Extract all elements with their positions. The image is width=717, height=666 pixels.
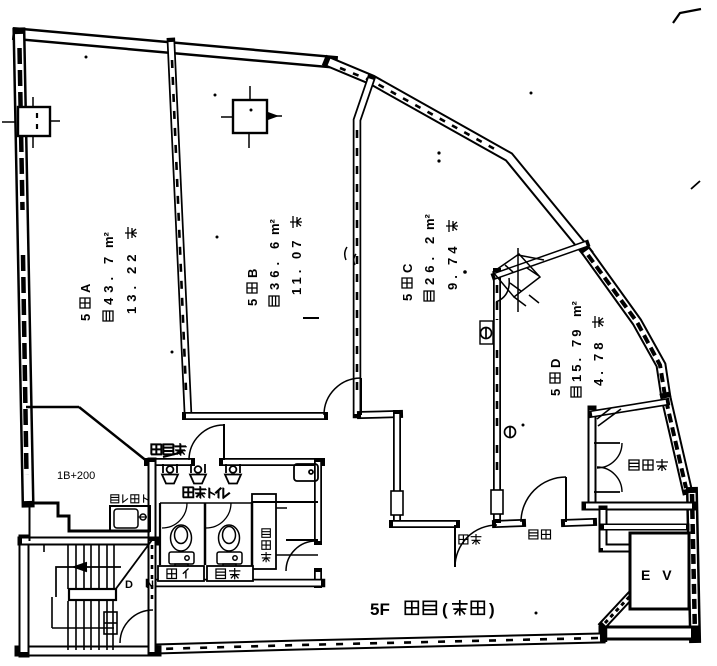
svg-text:9.: 9. <box>445 271 460 290</box>
svg-text:26.: 26. <box>422 252 437 285</box>
svg-text:5: 5 <box>400 294 415 301</box>
svg-text:74: 74 <box>445 243 460 265</box>
svg-text:36.: 36. <box>267 257 282 290</box>
svg-text:m²: m² <box>267 218 282 235</box>
svg-text:43.: 43. <box>101 272 116 305</box>
svg-text:2: 2 <box>422 237 437 244</box>
svg-text:79: 79 <box>569 327 584 347</box>
svg-text:78: 78 <box>591 339 606 361</box>
svg-text:A: A <box>78 283 93 293</box>
svg-text:B: B <box>245 269 260 278</box>
svg-text:6: 6 <box>267 242 282 249</box>
svg-text:5: 5 <box>78 314 93 321</box>
svg-text:m²: m² <box>422 213 437 230</box>
svg-text:5F: 5F <box>370 600 390 619</box>
svg-text:22: 22 <box>124 250 139 274</box>
svg-text:5: 5 <box>548 389 563 396</box>
svg-text:15.: 15. <box>569 355 584 382</box>
svg-text:D N: D N <box>125 579 159 591</box>
svg-text:(: ( <box>442 600 448 619</box>
svg-text:m²: m² <box>569 300 584 317</box>
svg-text:E V: E V <box>641 567 676 583</box>
svg-text:C: C <box>400 263 415 273</box>
svg-text:1B+200: 1B+200 <box>57 470 95 482</box>
svg-text:m²: m² <box>101 231 116 248</box>
svg-text:13.: 13. <box>124 281 139 314</box>
svg-text:11.: 11. <box>289 266 304 295</box>
svg-text:4.: 4. <box>591 367 606 386</box>
svg-text:D: D <box>548 359 563 368</box>
svg-text:5: 5 <box>245 299 260 306</box>
svg-text:): ) <box>489 600 495 619</box>
svg-text:07: 07 <box>289 237 304 259</box>
svg-text:7: 7 <box>101 257 116 264</box>
